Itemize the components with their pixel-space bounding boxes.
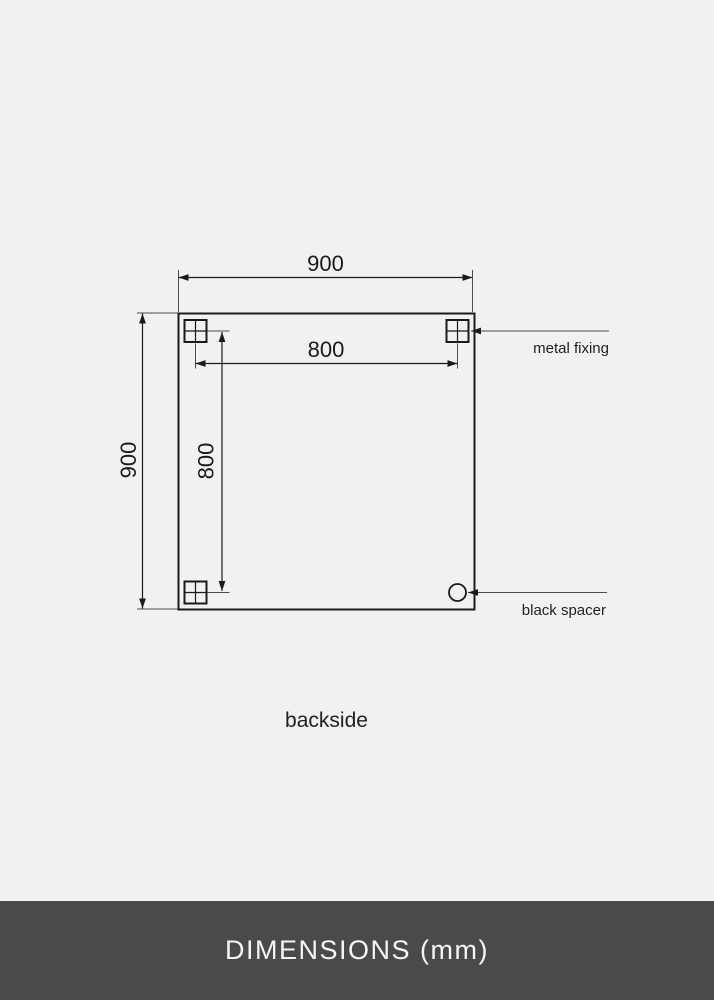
footer-bar: DIMENSIONS (mm) [0,901,714,1000]
backside-caption: backside [285,709,368,732]
dimension-fixing-width: 800 [196,337,458,369]
dimensions-diagram: 900 900 800 800 [0,0,714,1000]
metal-fixing-icon-top-left [185,320,207,342]
metal-fixing-label: metal fixing [533,340,609,357]
dimension-width-total: 900 [179,251,473,312]
dimension-height-total-label: 900 [116,442,141,479]
black-spacer-callout: black spacer [468,593,607,620]
dimension-height-total: 900 [116,313,178,609]
technical-drawing: 900 900 800 800 [0,0,714,901]
metal-fixing-callout: metal fixing [471,331,609,357]
metal-fixing-icon-bottom-left [185,582,207,604]
dimension-width-total-label: 900 [307,251,344,276]
dimension-fixing-width-label: 800 [308,337,345,362]
footer-title: DIMENSIONS (mm) [225,935,489,966]
metal-fixing-icon-top-right [447,320,469,342]
black-spacer-label: black spacer [522,602,606,619]
dimension-fixing-height: 800 [194,331,230,593]
black-spacer-icon [449,584,466,601]
dimension-fixing-height-label: 800 [194,443,219,480]
